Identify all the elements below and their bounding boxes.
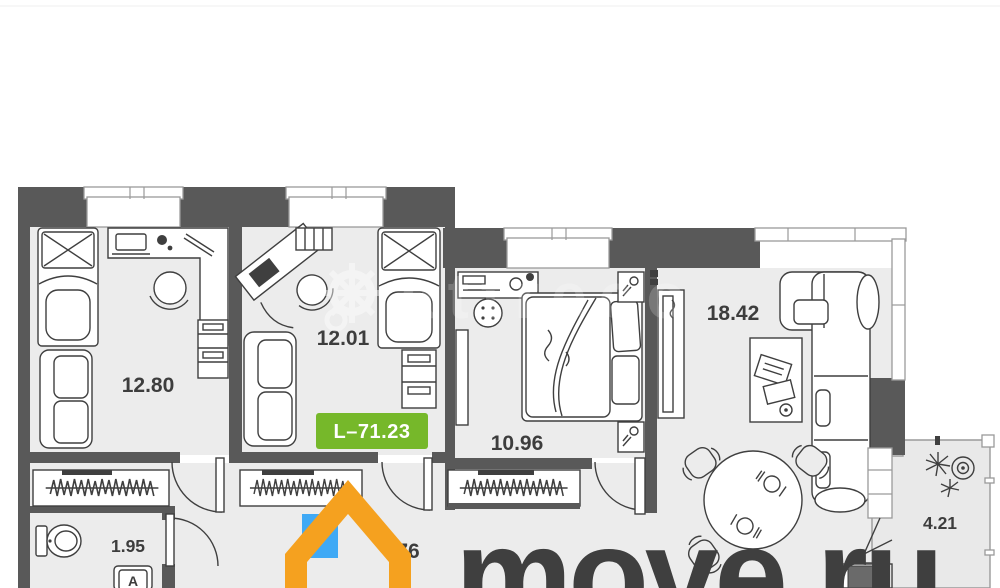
floor-plan-svg: A: [0, 0, 1000, 588]
area-label-room1: 12.80: [122, 374, 175, 397]
window-room2: [286, 187, 386, 227]
window-room1: [84, 187, 183, 227]
wardrobe-icon: [33, 470, 169, 506]
area-label-bedroom: 10.96: [491, 432, 544, 455]
total-area-badge: L–71.23: [316, 413, 428, 449]
agency-watermark-text: attreco: [400, 260, 697, 332]
portal-watermark-text: move.ru: [455, 501, 941, 588]
bookshelf-icon: [402, 350, 436, 408]
washer-label: A: [128, 573, 138, 588]
wardrobe-strip-icon: [456, 330, 468, 425]
bookshelf-icon: [198, 320, 228, 378]
area-label-room2: 12.01: [317, 327, 370, 350]
washing-machine-icon: A: [114, 566, 152, 588]
sofa-icon: [40, 350, 92, 448]
area-label-wc: 1.95: [111, 536, 145, 556]
mirror-icon: [618, 422, 644, 452]
armchair-sofa-icon: [244, 332, 296, 446]
area-label-living: 18.42: [707, 302, 760, 325]
total-area-badge-label: L–71.23: [334, 421, 411, 443]
toilet-icon: [36, 525, 81, 557]
coffee-table-icon: [750, 338, 802, 422]
wall-shelf-icon: [296, 228, 332, 250]
single-bed-icon: [38, 228, 98, 346]
floor-plan-image: A: [0, 0, 1000, 588]
